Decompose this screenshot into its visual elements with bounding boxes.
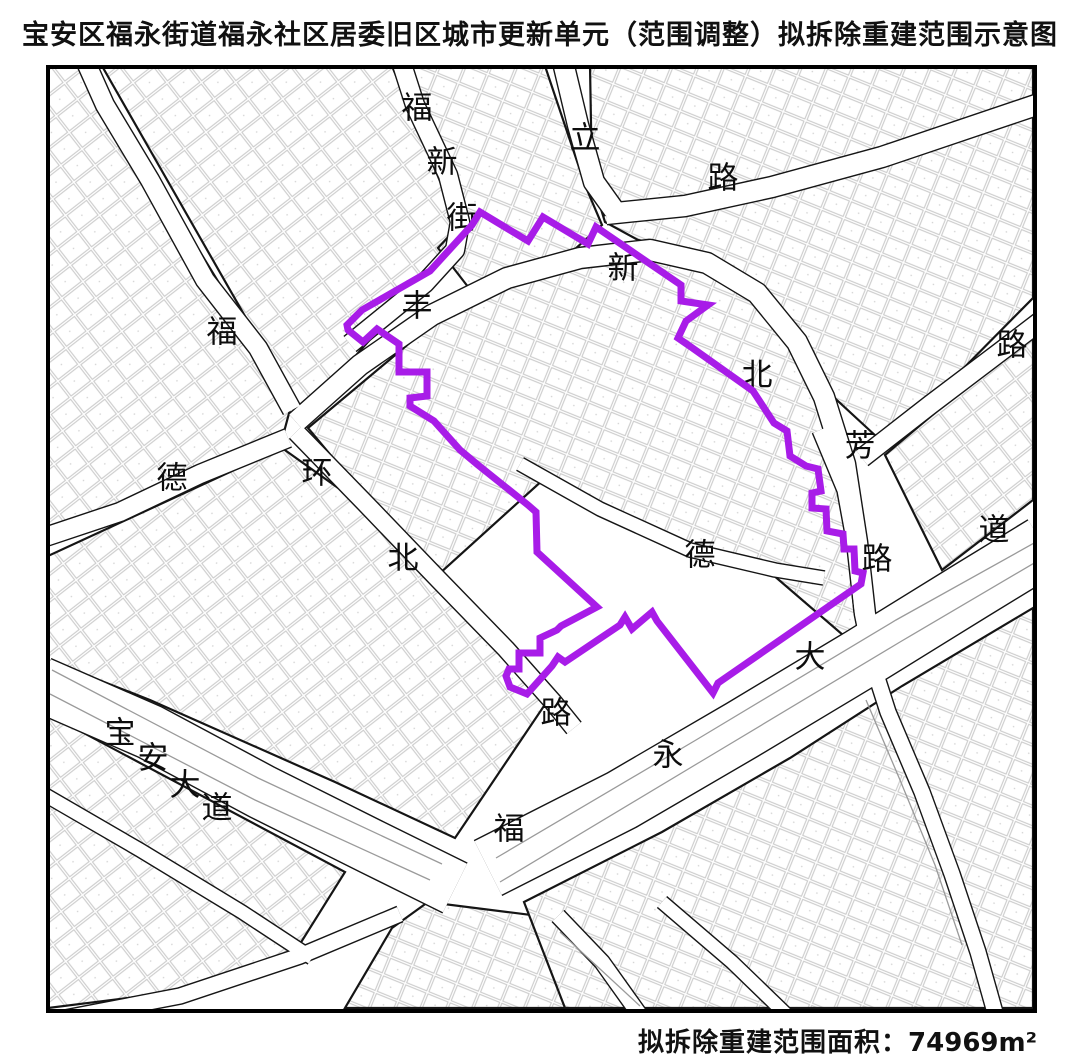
area-label: 拟拆除重建范围面积： [638,1027,908,1057]
road-label: 德 [685,538,716,573]
schematic-map: 福新街立路新北路丰福德环北路芳路德永大道宝安大道福 [50,69,1033,1009]
road-label: 大 [795,640,826,675]
road-label: 北 [388,541,419,576]
road-label: 环 [302,456,333,491]
road-label: 安 [138,741,169,776]
map-title: 宝安区福永街道福永社区居委旧区城市更新单元（范围调整）拟拆除重建范围示意图 [0,13,1080,52]
area-statement: 拟拆除重建范围面积：74969m² [638,1022,1037,1059]
road-label: 宝 [105,716,136,751]
page: 宝安区福永街道福永社区居委旧区城市更新单元（范围调整）拟拆除重建范围示意图 [0,0,1080,1061]
road-label: 永 [653,738,684,773]
road-label: 芳 [845,429,876,464]
area-unit: m² [999,1028,1037,1058]
road-label: 立 [570,121,601,156]
road-label: 道 [202,791,233,826]
area-value: 74969 [908,1028,998,1058]
road-label: 道 [979,513,1010,548]
road-label: 大 [170,768,201,803]
road-label: 丰 [402,289,433,324]
road-label: 路 [997,328,1028,363]
road-label: 路 [541,696,572,731]
road-label: 新 [427,145,458,180]
map-frame: 福新街立路新北路丰福德环北路芳路德永大道宝安大道福 [46,65,1037,1013]
road-label: 德 [157,461,188,496]
road-label: 福 [494,812,525,847]
road-label: 福 [207,315,238,350]
road-label: 路 [708,161,739,196]
road-label: 福 [402,91,433,126]
